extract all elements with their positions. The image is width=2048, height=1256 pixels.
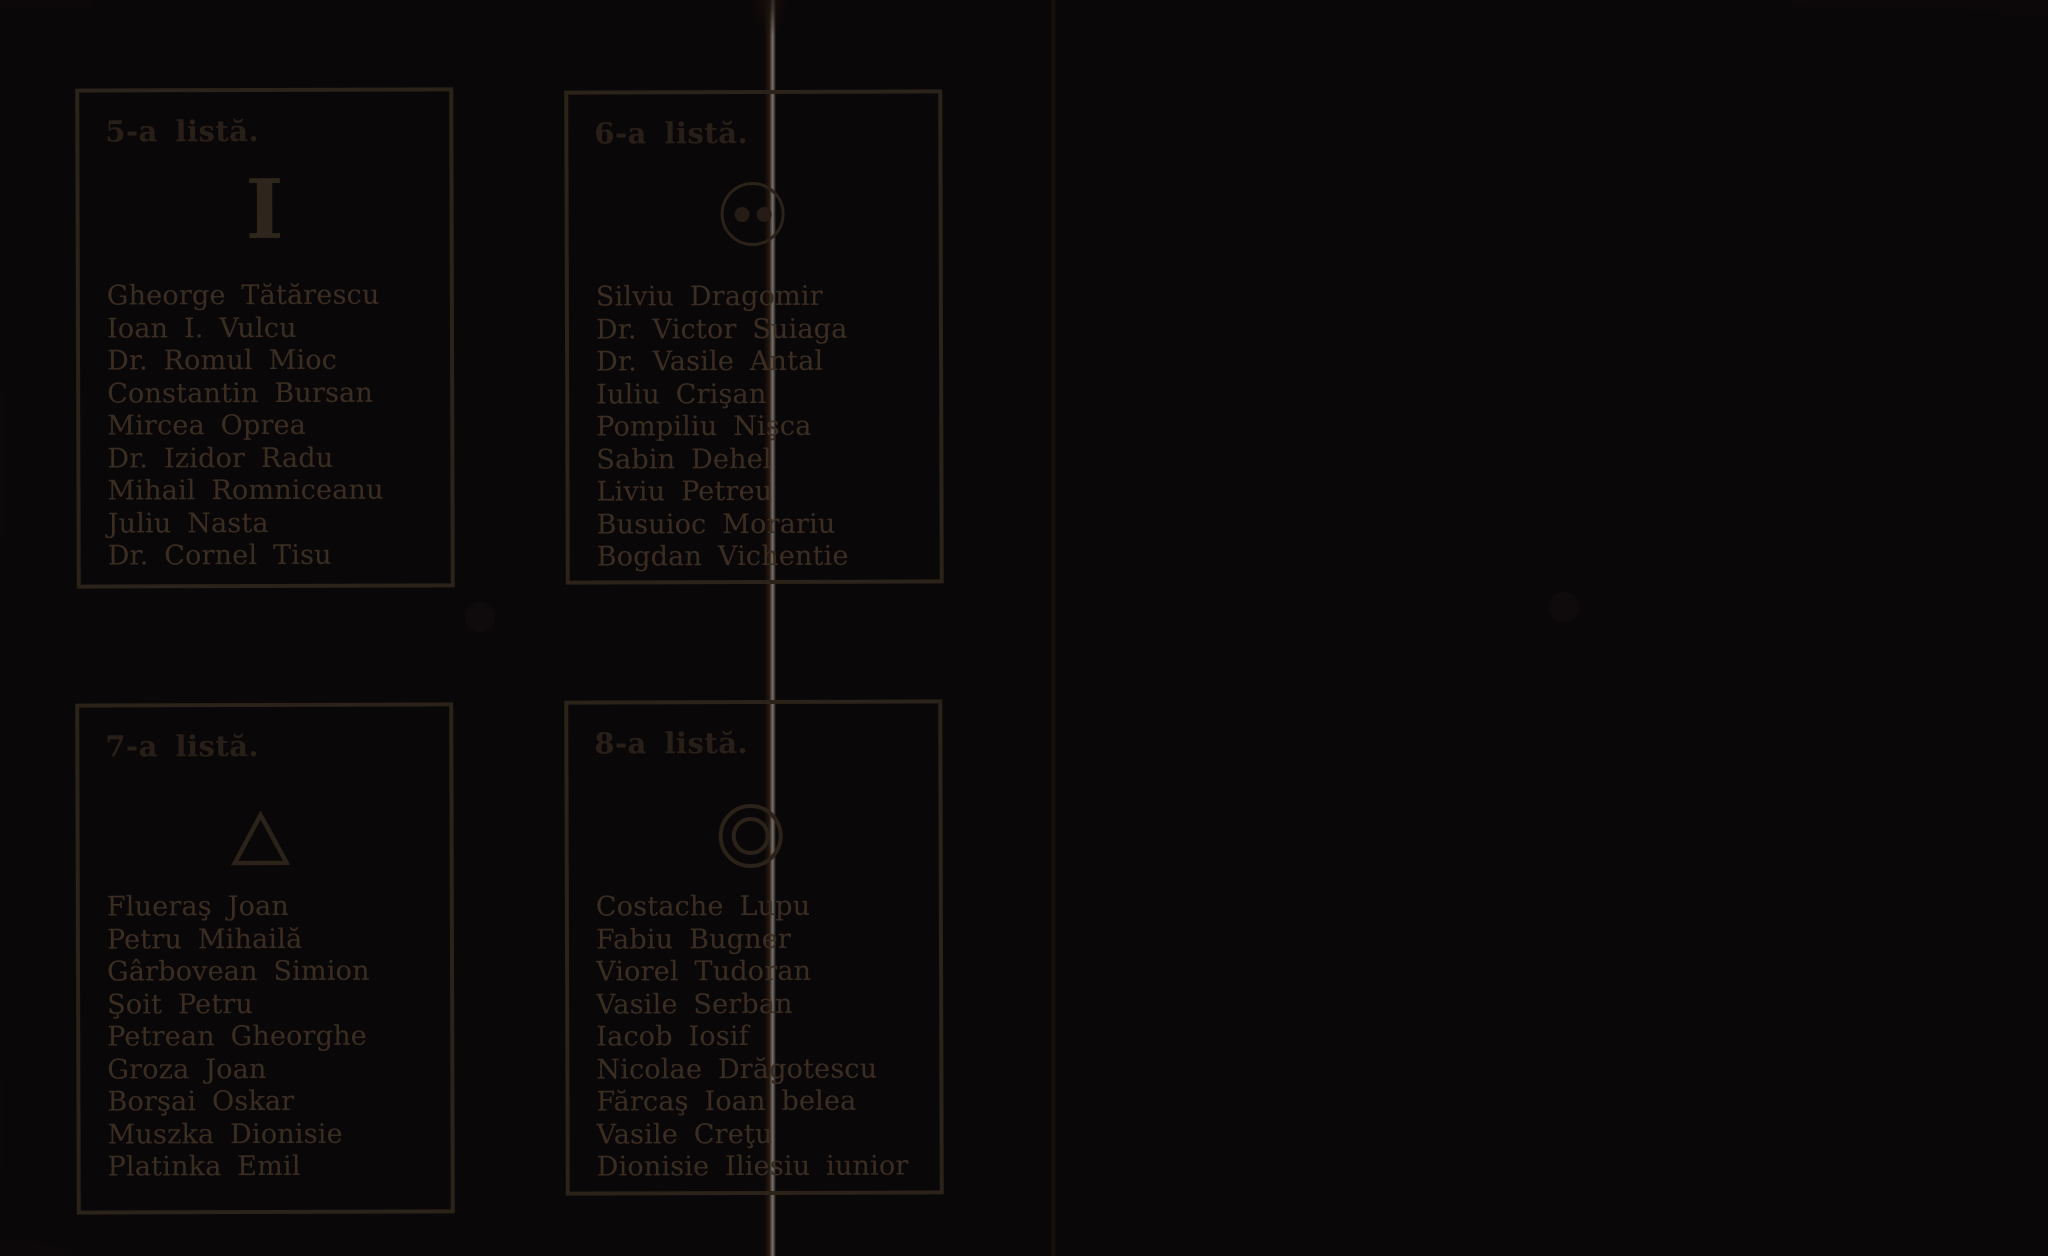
scan-edge-artifact bbox=[2002, 0, 2048, 18]
candidate-list: Silviu Dragomir Dr. Victor Suiaga Dr. Va… bbox=[596, 280, 932, 574]
candidate-name: Dr. Izidor Radu bbox=[107, 442, 442, 476]
circle-two-dots-icon bbox=[721, 182, 785, 246]
scan-edge-artifact bbox=[0, 1239, 74, 1256]
candidate-name: Ioan I. Vulcu bbox=[107, 312, 442, 346]
candidate-name: Mircea Oprea bbox=[107, 409, 442, 443]
ballot-list-5: 5-a listă. I Gheorge Tătărescu Ioan I. V… bbox=[75, 87, 455, 588]
ballot-5-title: 5-a listă. bbox=[105, 114, 259, 148]
candidate-name: Vasile Serban bbox=[596, 988, 931, 1022]
candidate-name: Sabin Dehel bbox=[596, 443, 931, 477]
scan-edge-artifact bbox=[0, 0, 96, 7]
candidate-name: Gheorge Tătărescu bbox=[107, 279, 442, 313]
punch-hole bbox=[465, 602, 495, 632]
candidate-name: Vasile Creţu bbox=[597, 1118, 932, 1152]
candidate-name: Silviu Dragomir bbox=[596, 280, 931, 314]
dot-icon bbox=[756, 206, 771, 221]
candidate-name: Platinka Emil bbox=[108, 1150, 443, 1184]
candidate-name: Gârbovean Simion bbox=[107, 955, 442, 989]
scan-edge-artifact bbox=[0, 388, 5, 536]
candidate-name: Viorel Tudoran bbox=[596, 955, 931, 989]
candidate-name: Groza Joan bbox=[107, 1053, 442, 1087]
candidate-list: Costache Lupu Fabiu Bugner Viorel Tudora… bbox=[596, 890, 932, 1184]
candidate-name: Dr. Victor Suiaga bbox=[596, 313, 931, 347]
candidate-name: Liviu Petreu bbox=[596, 475, 931, 509]
triangle-icon bbox=[230, 811, 290, 867]
ballot-8-title: 8-a listă. bbox=[594, 726, 748, 760]
candidate-name: Bogdan Vichentie bbox=[597, 540, 932, 574]
candidate-name: Fabiu Bugner bbox=[596, 923, 931, 957]
ballot-list-8: 8-a listă. Costache Lupu Fabiu Bugner Vi… bbox=[564, 699, 944, 1195]
candidate-name: Iuliu Crişan bbox=[596, 378, 931, 412]
candidate-name: Busuioc Morariu bbox=[597, 508, 932, 542]
candidate-name: Dr. Romul Mioc bbox=[107, 344, 442, 378]
candidate-name: Pompiliu Nişca bbox=[596, 410, 931, 444]
candidate-name: Costache Lupu bbox=[596, 890, 931, 924]
candidate-name: Iacob Iosif bbox=[596, 1020, 931, 1054]
fold-shadow bbox=[752, 0, 786, 48]
candidate-name: Constantin Bursan bbox=[107, 377, 442, 411]
candidate-name: Petrean Gheorghe bbox=[107, 1020, 442, 1054]
ballot-6-title: 6-a listă. bbox=[594, 116, 748, 150]
candidate-name: Flueraş Joan bbox=[107, 890, 442, 924]
candidate-name: Fărcaş Ioan belea bbox=[596, 1085, 931, 1119]
candidate-name: Şoit Petru bbox=[107, 988, 442, 1022]
inner-circle-icon bbox=[732, 817, 770, 855]
candidate-name: Borşai Oskar bbox=[107, 1085, 442, 1119]
paper-crease bbox=[1050, 0, 1057, 1256]
candidate-name: Petru Mihailă bbox=[107, 923, 442, 957]
candidate-name: Nicolae Drăgotescu bbox=[596, 1053, 931, 1087]
ballot-paper: 5-a listă. I Gheorge Tătărescu Ioan I. V… bbox=[0, 0, 2048, 1256]
candidate-name: Dr. Vasile Antal bbox=[596, 345, 931, 379]
vertical-bar-icon: I bbox=[79, 168, 449, 251]
candidate-list: Gheorge Tătărescu Ioan I. Vulcu Dr. Romu… bbox=[107, 279, 443, 573]
double-circle-icon bbox=[719, 804, 783, 868]
ballot-7-title: 7-a listă. bbox=[105, 729, 259, 763]
candidate-list: Flueraş Joan Petru Mihailă Gârbovean Sim… bbox=[107, 890, 443, 1184]
ballot-list-6: 6-a listă. Silviu Dragomir Dr. Victor Su… bbox=[564, 89, 944, 584]
candidate-name: Juliu Nasta bbox=[108, 507, 443, 541]
punch-hole bbox=[1549, 592, 1579, 622]
candidate-name: Muszka Dionisie bbox=[108, 1118, 443, 1152]
candidate-name: Dr. Cornel Tisu bbox=[108, 539, 443, 573]
dot-icon bbox=[734, 207, 749, 222]
ballot-list-7: 7-a listă. Flueraş Joan Petru Mihailă Gâ… bbox=[75, 702, 455, 1214]
candidate-name: Dionisie Iliesiu iunior bbox=[597, 1150, 932, 1184]
scan-edge-artifact bbox=[0, 1078, 4, 1170]
candidate-name: Mihail Romniceanu bbox=[107, 474, 442, 508]
